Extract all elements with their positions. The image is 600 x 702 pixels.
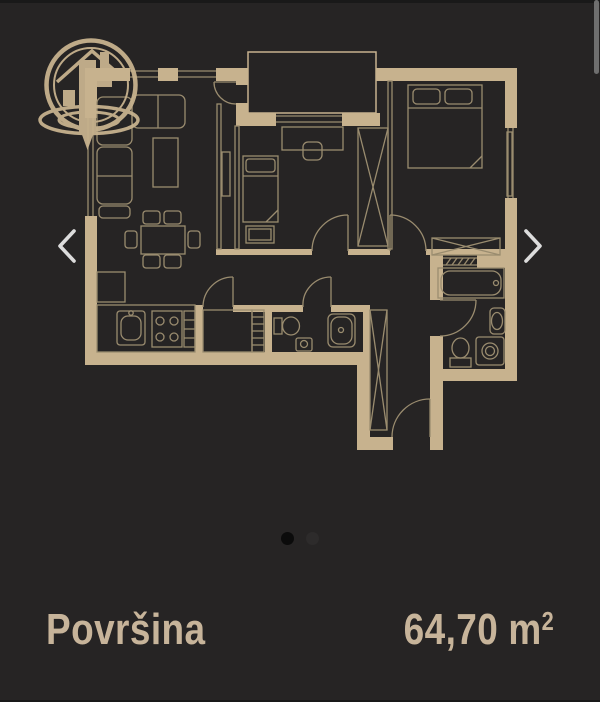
floor-plan [0,0,600,560]
kitchen-counter [97,305,195,352]
area-value: 64,70m2 [403,605,554,655]
listing-screen: Površina 64,70m2 [0,0,600,702]
kitchen-sink [117,311,145,345]
terrace [248,52,376,113]
carousel-prev-button[interactable] [50,226,84,268]
details-row: Površina 64,70m2 [0,595,600,665]
wc-toilet [274,317,300,335]
stove [152,311,182,347]
counter-unit [184,311,195,347]
bathroom-toilet [450,338,471,367]
carousel-dot-active[interactable] [281,532,294,545]
wc-sink [296,338,312,351]
walls [85,68,517,450]
carousel-next-button[interactable] [516,226,550,268]
shower [328,314,355,347]
washing-machine [476,337,504,365]
house-pin-icon [57,51,114,150]
bedroom-master [408,85,500,255]
area-label: Površina [46,605,205,655]
brand-logo [40,41,138,151]
coffee-table [153,138,178,187]
double-bed [408,85,482,168]
desk-chair [303,142,322,160]
bathtub [438,268,504,298]
hallway [370,310,387,430]
carousel-dot[interactable] [306,532,319,545]
chevron-left-icon [54,226,80,266]
wc [274,314,355,351]
bed-chest [246,226,274,243]
bathroom-sink [490,308,505,334]
desk [282,127,343,150]
wardrobe [358,128,388,246]
tv-unit [222,152,230,196]
storage-closet [203,310,264,352]
dining-set [125,211,200,268]
fridge [97,272,125,302]
area-unit: m [508,605,541,654]
chevron-right-icon [520,226,546,266]
hall-wardrobe [370,310,387,430]
bedroom-small [243,127,388,246]
single-bed [243,156,278,222]
carousel-dots [0,532,600,545]
area-unit-exponent: 2 [541,606,554,636]
scrollbar-thumb[interactable] [594,0,599,74]
kitchen [97,272,195,352]
